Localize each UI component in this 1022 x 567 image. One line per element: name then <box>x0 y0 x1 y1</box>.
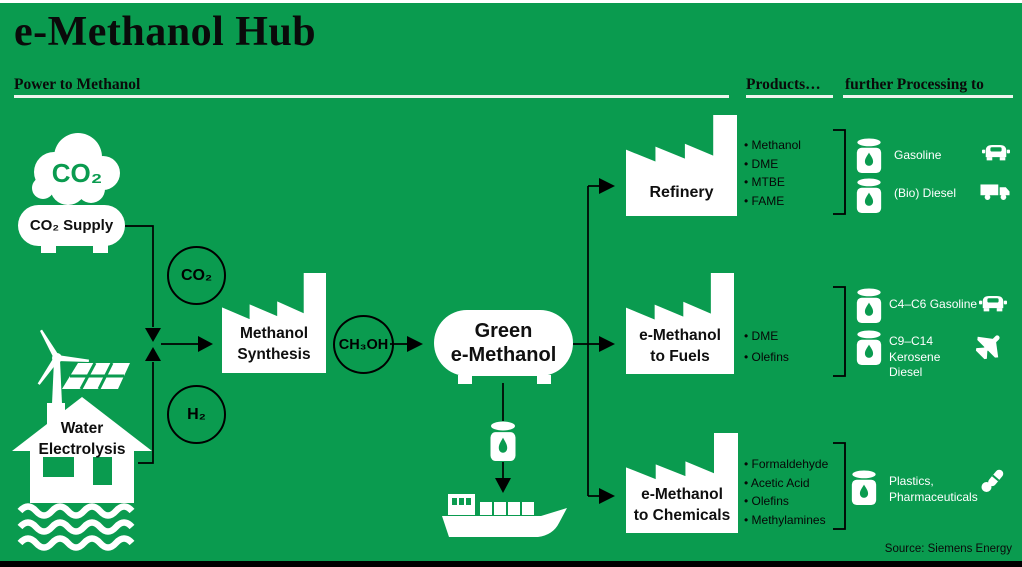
chemicals-products-list: Formaldehyde Acetic Acid Olefins Methyla… <box>744 455 828 529</box>
tank-foot <box>41 245 56 253</box>
plane-icon <box>974 332 1004 360</box>
car-icon <box>979 293 1007 312</box>
water-electrolysis-label: Water Electrolysis <box>12 418 152 460</box>
ch3oh-label: CH₃OH <box>339 337 388 353</box>
valve-triangle-up <box>145 347 161 361</box>
truck-icon <box>980 182 1010 201</box>
list-item: Acetic Acid <box>744 474 828 493</box>
co2-feed-label: CO₂ <box>181 267 212 285</box>
output-label: Gasoline <box>894 148 941 164</box>
ch3oh-circle: CH₃OH <box>333 315 394 374</box>
arrow-to-chemicals <box>599 488 615 504</box>
list-item: Formaldehyde <box>744 455 828 474</box>
bracket-refinery <box>833 130 845 214</box>
h2-feed-circle: H₂ <box>167 385 226 444</box>
co2-cloud-icon: CO₂ <box>28 130 124 212</box>
pills-icon <box>981 468 1007 493</box>
bracket-fuels <box>833 287 845 376</box>
e-methanol-hub-infographic: e-Methanol Hub Power to Methanol Product… <box>0 0 1022 567</box>
list-item: MTBE <box>744 173 801 192</box>
barrel-icon <box>855 330 883 365</box>
output-label: Plastics, Pharmaceuticals <box>889 474 978 505</box>
barrel-icon <box>855 138 883 173</box>
emethanol-to-chemicals-label: e-Methanol to Chemicals <box>626 484 738 526</box>
waves-icon <box>16 501 142 551</box>
emethanol-to-chemicals-plant: e-Methanol to Chemicals <box>626 433 738 533</box>
bracket-chemicals <box>833 443 845 529</box>
output-label: C9–C14 Kerosene Diesel <box>889 334 940 381</box>
barrel-icon <box>855 288 883 323</box>
bottom-border <box>0 561 1022 567</box>
arrow-to-tank <box>407 336 423 352</box>
barrel-icon <box>489 421 517 461</box>
fuels-products-list: DME Olefins <box>744 326 789 367</box>
output-label: C4–C6 Gasoline <box>889 297 977 313</box>
co2-feed-circle: CO₂ <box>167 246 226 305</box>
valve-triangle-down <box>145 328 161 342</box>
arrow-to-refinery <box>599 178 615 194</box>
barrel-icon <box>855 178 883 213</box>
arrow-to-fuels <box>599 336 615 352</box>
co2-supply-tank: CO₂ Supply <box>18 205 125 246</box>
list-item: Olefins <box>744 492 828 511</box>
list-item: Olefins <box>744 347 789 368</box>
list-item: Methylamines <box>744 511 828 530</box>
list-item: DME <box>744 155 801 174</box>
output-label: (Bio) Diesel <box>894 186 956 202</box>
solar-panel-icon <box>62 360 132 394</box>
refinery-products-list: Methanol DME MTBE FAME <box>744 136 801 210</box>
h2-feed-label: H₂ <box>187 406 206 424</box>
tank-foot <box>458 375 472 384</box>
green-emethanol-label: Green e-Methanol <box>451 319 557 367</box>
refinery-label: Refinery <box>626 182 737 203</box>
methanol-synthesis-plant: Methanol Synthesis <box>222 273 326 373</box>
co2-supply-label: CO₂ Supply <box>30 217 113 234</box>
green-emethanol-tank: Green e-Methanol <box>434 310 573 376</box>
car-icon <box>982 142 1010 161</box>
list-item: Methanol <box>744 136 801 155</box>
list-item: DME <box>744 326 789 347</box>
ship-icon <box>440 491 570 539</box>
emethanol-to-fuels-label: e-Methanol to Fuels <box>626 325 734 367</box>
tank-foot <box>537 375 551 384</box>
arrow-to-synthesis <box>198 336 213 352</box>
methanol-synthesis-label: Methanol Synthesis <box>222 323 326 365</box>
product-brackets <box>833 130 845 529</box>
source-credit: Source: Siemens Energy <box>885 543 1012 555</box>
list-item: FAME <box>744 192 801 211</box>
tank-foot <box>93 245 108 253</box>
barrel-icon <box>850 470 878 505</box>
co2-cloud-label: CO₂ <box>52 158 103 188</box>
emethanol-to-fuels-plant: e-Methanol to Fuels <box>626 273 734 374</box>
refinery-plant: Refinery <box>626 115 737 216</box>
